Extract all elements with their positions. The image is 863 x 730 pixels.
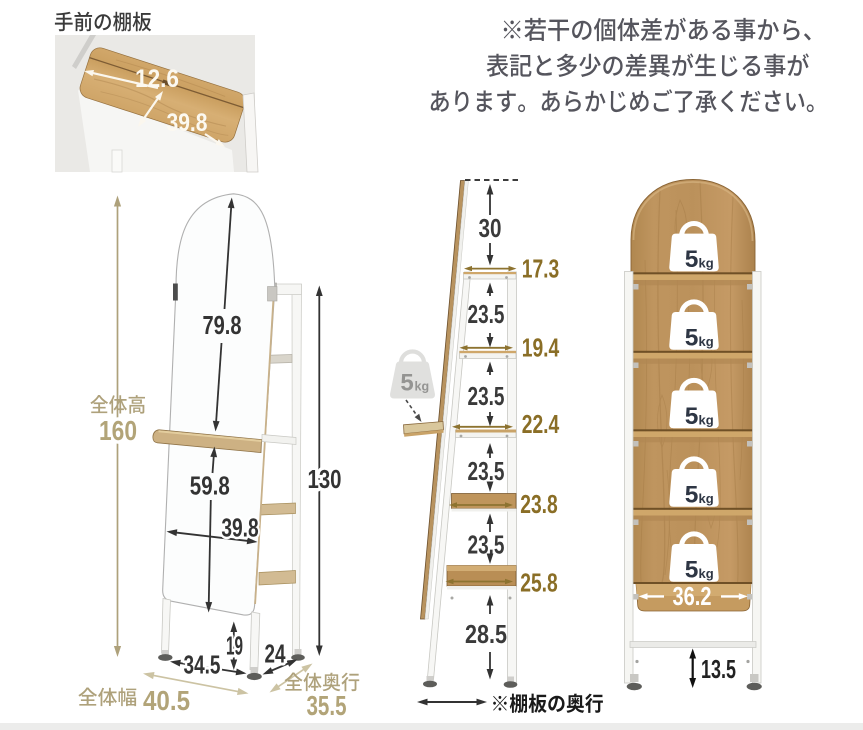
svg-text:19.4: 19.4 xyxy=(522,333,560,363)
svg-text:35.5: 35.5 xyxy=(307,690,347,721)
svg-text:25.8: 25.8 xyxy=(520,568,558,598)
svg-text:19: 19 xyxy=(226,633,243,661)
svg-text:23.8: 23.8 xyxy=(520,489,558,519)
svg-text:130: 130 xyxy=(308,466,342,494)
svg-text:kg: kg xyxy=(699,255,714,270)
svg-text:28.5: 28.5 xyxy=(465,621,507,649)
svg-text:5: 5 xyxy=(685,557,699,584)
svg-text:kg: kg xyxy=(699,566,714,581)
svg-text:34.5: 34.5 xyxy=(184,652,221,680)
svg-text:kg: kg xyxy=(699,412,714,427)
svg-text:12.6: 12.6 xyxy=(135,65,179,93)
svg-text:36.2: 36.2 xyxy=(673,581,712,611)
svg-text:13.5: 13.5 xyxy=(701,654,736,684)
svg-text:22.4: 22.4 xyxy=(522,409,560,439)
svg-text:59.8: 59.8 xyxy=(190,473,230,501)
svg-text:30: 30 xyxy=(479,215,502,243)
svg-text:39.8: 39.8 xyxy=(221,515,258,543)
svg-text:24: 24 xyxy=(265,641,287,669)
svg-text:5: 5 xyxy=(685,246,699,273)
svg-text:5: 5 xyxy=(400,370,413,397)
svg-text:23.5: 23.5 xyxy=(468,532,505,560)
svg-text:23.5: 23.5 xyxy=(468,301,505,329)
svg-text:79.8: 79.8 xyxy=(203,312,242,340)
svg-text:17.3: 17.3 xyxy=(522,254,560,284)
svg-text:kg: kg xyxy=(699,334,714,349)
svg-text:23.5: 23.5 xyxy=(468,383,505,411)
svg-text:160: 160 xyxy=(99,415,137,446)
svg-text:5: 5 xyxy=(685,325,699,352)
svg-text:5: 5 xyxy=(685,403,699,430)
svg-text:40.5: 40.5 xyxy=(143,685,190,716)
svg-text:kg: kg xyxy=(415,380,430,394)
svg-text:kg: kg xyxy=(699,491,714,506)
svg-text:23.5: 23.5 xyxy=(468,458,505,486)
svg-text:39.8: 39.8 xyxy=(167,109,208,137)
svg-text:5: 5 xyxy=(685,482,699,509)
